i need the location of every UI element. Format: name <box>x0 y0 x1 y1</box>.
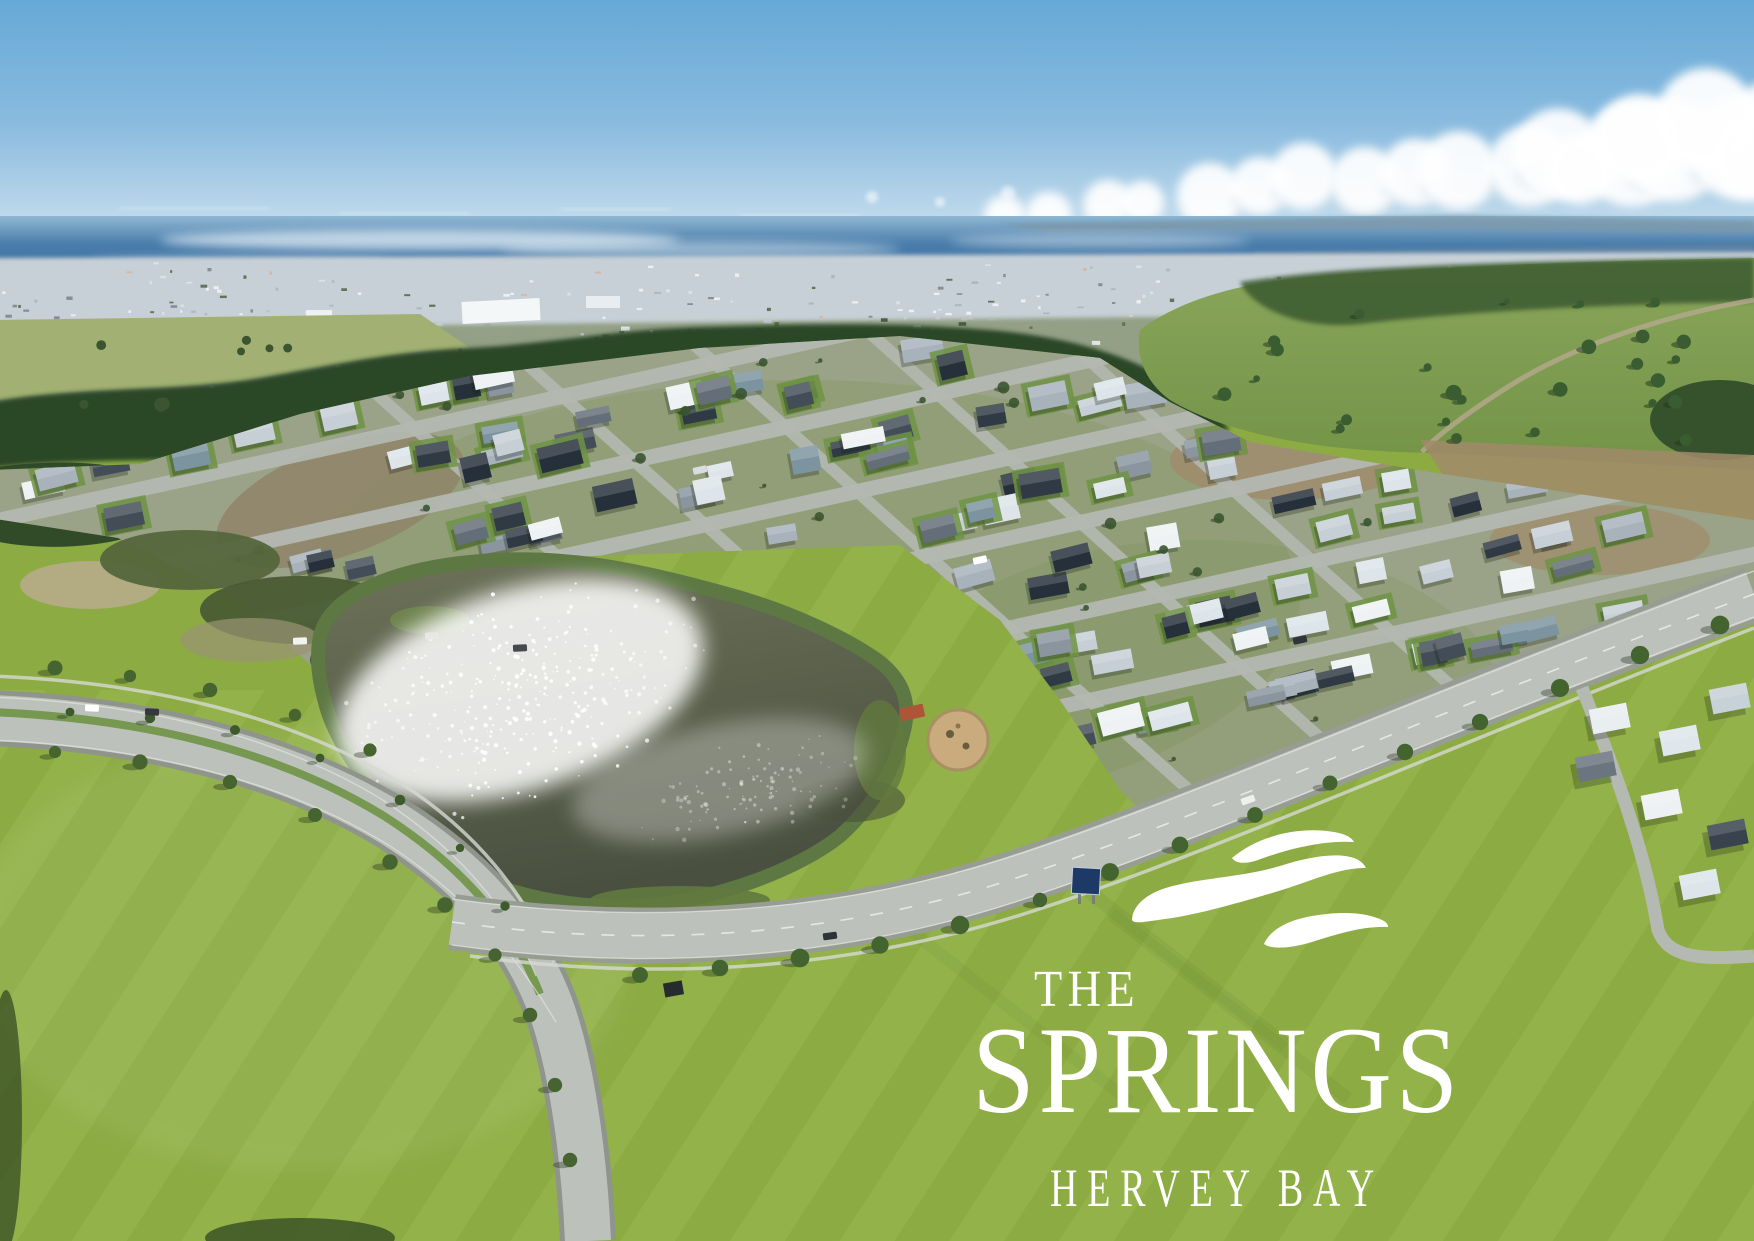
sparkle-dot <box>380 739 383 742</box>
sparkle-dot <box>780 767 784 771</box>
city-fleck <box>897 309 902 311</box>
sparkle-dot <box>757 743 761 747</box>
city-fleck <box>933 311 936 314</box>
estate-tree <box>1214 513 1224 523</box>
sparkle-dot <box>531 639 535 643</box>
city-fleck <box>160 276 166 278</box>
sparkle-dot <box>478 680 482 684</box>
cloud-puff <box>1270 143 1337 210</box>
sparkle-dot <box>688 828 691 831</box>
sparkle-dot <box>555 665 558 668</box>
sparkle-dot <box>553 739 557 743</box>
sparkle-dot <box>426 759 428 761</box>
city-fleck <box>985 264 991 266</box>
sparkle-dot <box>514 684 517 687</box>
sparkle-dot <box>496 704 498 706</box>
sparkle-dot <box>447 645 451 649</box>
sparkle-dot <box>554 718 556 720</box>
sparkle-dot <box>679 798 683 802</box>
sparkle-dot <box>472 634 474 636</box>
city-fleck <box>341 288 347 291</box>
sparkle-dot <box>477 615 479 617</box>
city-fleck <box>1129 315 1133 317</box>
sparkle-dot <box>567 610 571 614</box>
logo-location: HERVEY BAY <box>1050 1158 1384 1218</box>
sparkle-dot <box>768 762 771 765</box>
sparkle-dot <box>492 648 496 652</box>
estate-tree <box>635 453 646 464</box>
sparkle-dot <box>642 686 646 690</box>
field-tree <box>242 336 251 345</box>
street-tree <box>132 754 147 769</box>
sparkle-dot <box>550 679 554 683</box>
city-fleck <box>909 310 914 313</box>
sparkle-dot <box>475 683 477 685</box>
sparkle-dot <box>473 645 475 647</box>
sparkle-dot <box>693 644 697 648</box>
paddock-tree <box>1636 330 1650 344</box>
city-fleck <box>162 312 164 315</box>
sparkle-dot <box>665 630 669 634</box>
sparkle-dot <box>571 720 575 724</box>
city-fleck <box>180 305 183 307</box>
street-tree <box>1711 616 1730 635</box>
sparkle-dot <box>590 668 593 671</box>
sparkle-dot <box>394 699 398 703</box>
city-fleck <box>220 296 227 298</box>
sparkle-dot <box>468 783 472 787</box>
city-fleck <box>200 285 207 288</box>
city-fleck <box>666 289 670 292</box>
sparkle-dot <box>792 781 794 783</box>
paddock-tree <box>1631 358 1643 370</box>
field-tree <box>79 400 88 409</box>
city-fleck <box>251 309 253 312</box>
city-fleck <box>276 288 279 291</box>
city-fleck <box>1098 283 1102 286</box>
city-fleck <box>946 279 952 281</box>
aerial-photo-springs-hervey-bay: THE SPRINGS HERVEY BAY <box>0 0 1754 1241</box>
sparkle-dot <box>555 747 557 749</box>
city-fleck <box>358 292 362 295</box>
sparkle-dot <box>532 733 534 735</box>
car <box>293 637 307 644</box>
sparkle-dot <box>374 721 377 724</box>
city-fleck <box>71 314 76 316</box>
sparkle-dot <box>521 668 525 672</box>
sparkle-dot <box>473 750 475 752</box>
city-fleck <box>319 280 325 282</box>
sparkle-dot <box>526 712 530 716</box>
field-tree <box>237 347 245 355</box>
city-fleck <box>150 281 152 284</box>
sparkle-dot <box>593 744 597 748</box>
sparkle-dot <box>655 599 659 603</box>
street-tree <box>66 708 75 717</box>
sparkle-dot <box>529 795 531 797</box>
city-fleck <box>1090 267 1092 269</box>
street-tree <box>437 897 453 913</box>
city-fleck <box>13 305 17 308</box>
sparkle-dot <box>566 670 570 674</box>
sparkle-dot <box>610 630 613 633</box>
cloud-puff <box>1546 136 1614 204</box>
sparkle-dot <box>569 605 573 609</box>
sparkle-dot <box>521 659 523 661</box>
sparkle-dot <box>618 680 619 681</box>
city-fleck <box>128 310 130 313</box>
sparkle-dot <box>792 787 796 791</box>
sparkle-dot <box>463 739 466 742</box>
sparkle-dot <box>525 733 527 735</box>
sparkle-dot <box>746 808 748 810</box>
sparkle-dot <box>414 770 416 772</box>
sparkle-dot <box>742 796 743 797</box>
sparkle-dot <box>579 657 581 659</box>
sparkle-dot <box>509 625 512 628</box>
suburb-fleck <box>1122 322 1125 326</box>
city-fleck <box>809 302 814 304</box>
suburb-fleck <box>1029 326 1032 328</box>
paddock-tree <box>1341 414 1352 425</box>
sparkle-dot <box>634 661 635 662</box>
city-fleck <box>2 291 5 294</box>
sparkle-dot <box>790 811 794 815</box>
sparkle-dot <box>575 582 577 584</box>
sparkle-dot <box>584 691 588 695</box>
estate-tree <box>762 484 766 488</box>
sparkle-dot <box>710 767 713 770</box>
sparkle-dot <box>406 701 409 704</box>
sparkle-dot <box>668 621 672 625</box>
sparkle-dot <box>509 699 511 701</box>
sparkle-dot <box>540 596 542 598</box>
sparkle-dot <box>537 704 540 707</box>
car <box>425 632 439 639</box>
city-fleck <box>34 300 37 303</box>
sparkle-dot <box>527 762 531 766</box>
sparkle-dot <box>652 838 654 840</box>
sparkle-dot <box>506 707 508 709</box>
street-tree <box>363 743 376 756</box>
street-tree <box>1631 646 1649 664</box>
sparkle-dot <box>728 760 731 763</box>
street-tree <box>1322 775 1337 790</box>
city-fleck <box>1003 274 1005 277</box>
estate-tree <box>1009 398 1019 408</box>
sparkle-dot <box>491 592 495 596</box>
suburb-fleck <box>881 318 888 322</box>
street-tree <box>712 960 729 977</box>
sparkle-dot <box>441 684 445 688</box>
sparkle-dot <box>489 662 491 664</box>
sparkle-dot <box>603 700 607 704</box>
city-fleck <box>66 297 72 300</box>
sparkle-dot <box>813 795 816 798</box>
sparkle-dot <box>609 683 610 684</box>
sparkle-dot <box>789 768 792 771</box>
sparkle-dot <box>729 788 730 789</box>
sparkle-dot <box>801 746 804 749</box>
city-fleck <box>5 315 11 318</box>
city-fleck <box>332 280 334 283</box>
sparkle-dot <box>367 723 371 727</box>
sparkle-dot <box>522 709 525 712</box>
sparkle-dot <box>396 719 400 723</box>
sparkle-dot <box>483 751 488 756</box>
sparkle-dot <box>514 717 518 721</box>
sparkle-dot <box>507 688 509 690</box>
sparkle-dot <box>482 743 484 745</box>
sparkle-dot <box>699 820 700 821</box>
sparkle-dot <box>660 697 662 699</box>
field-tree <box>266 344 274 352</box>
sparkle-dot <box>361 742 364 745</box>
street-tree <box>382 854 397 869</box>
sparkle-dot <box>535 653 538 656</box>
sparkle-dot <box>703 802 707 806</box>
sparkle-dot <box>493 625 497 629</box>
sparkle-dot <box>528 634 531 637</box>
sparkle-dot <box>722 782 726 786</box>
city-fleck <box>687 303 693 305</box>
sparkle-dot <box>565 641 567 643</box>
sparkle-dot <box>497 647 500 650</box>
sparkle-dot <box>448 737 452 741</box>
street-tree <box>1033 893 1047 907</box>
city-fleck <box>150 311 154 313</box>
sparkle-dot <box>482 632 484 634</box>
estate-tree <box>1159 545 1168 554</box>
sparkle-dot <box>544 676 548 680</box>
sparkle-dot <box>568 751 570 753</box>
sparkle-dot <box>534 747 537 750</box>
sparkle-dot <box>606 703 608 705</box>
sparkle-dot <box>546 695 547 696</box>
cloud-streak <box>120 207 270 210</box>
sparkle-dot <box>791 820 795 824</box>
sparkle-dot <box>616 734 620 738</box>
sparkle-dot <box>552 671 553 672</box>
house <box>786 445 822 479</box>
sparkle-dot <box>554 767 558 771</box>
tree-shadow <box>56 715 67 719</box>
estate-tree <box>735 388 747 400</box>
sparkle-dot <box>752 776 754 778</box>
city-fleck <box>992 304 998 307</box>
sparkle-dot <box>429 723 430 724</box>
city-fleck <box>206 288 209 291</box>
sparkle-dot <box>515 674 520 679</box>
sparkle-dot <box>556 636 558 638</box>
sparkle-dot <box>809 756 812 759</box>
sparkle-dot <box>614 688 616 690</box>
sparkle-dot <box>378 687 380 689</box>
sparkle-dot <box>543 663 545 665</box>
city-fleck <box>269 271 272 274</box>
estate-tree <box>997 382 1009 394</box>
estate-tree <box>919 397 925 403</box>
sparkle-dot <box>344 701 348 705</box>
sparkle-dot <box>429 667 431 669</box>
suburb-fleck <box>621 327 630 331</box>
sparkle-dot <box>433 689 435 691</box>
sparkle-dot <box>628 711 631 714</box>
city-fleck <box>966 312 971 315</box>
sparkle-dot <box>565 683 569 687</box>
sparkle-dot <box>629 658 632 661</box>
paddock-tree <box>1677 335 1691 349</box>
sparkle-dot <box>437 727 440 730</box>
sparkle-dot <box>480 613 483 616</box>
sparkle-dot <box>505 641 508 644</box>
sparkle-dot <box>637 692 641 696</box>
sparkle-dot <box>413 691 415 693</box>
estate-tree <box>1083 605 1089 611</box>
city-fleck <box>1077 306 1084 308</box>
sparkle-dot <box>530 716 532 718</box>
street-tree <box>1172 837 1189 854</box>
estate-tree <box>1313 716 1318 721</box>
city-fleck <box>730 301 732 303</box>
sparkle-dot <box>488 637 492 641</box>
sparkle-dot <box>484 781 488 785</box>
sparkle-dot <box>355 750 357 752</box>
sparkle-dot <box>849 764 852 767</box>
sparkle-dot <box>409 713 413 717</box>
city-fleck <box>767 308 771 311</box>
estate-tree <box>1363 518 1371 526</box>
cloud-wisp <box>935 197 945 207</box>
sparkle-dot <box>508 721 512 725</box>
sparkle-dot <box>633 604 638 609</box>
city-fleck <box>735 273 739 276</box>
city-fleck <box>23 310 29 312</box>
sparkle-dot <box>758 759 760 761</box>
sparkle-dot <box>595 654 598 657</box>
sparkle-dot <box>470 695 474 699</box>
sparkle-dot <box>476 786 480 790</box>
sparkle-dot <box>593 697 597 701</box>
paddock-tree <box>1668 395 1682 409</box>
sparkle-dot <box>408 651 411 654</box>
city-fleck <box>595 272 601 274</box>
sparkle-dot <box>679 806 682 809</box>
estate-tree <box>423 505 430 512</box>
sparkle-dot <box>679 782 682 785</box>
sparkle-dot <box>532 649 535 652</box>
sparkle-dot <box>541 666 546 671</box>
paddock-tree <box>1253 375 1260 382</box>
sparkle-dot <box>691 597 696 602</box>
sparkle-dot <box>489 735 492 738</box>
sparkle-dot <box>744 821 746 823</box>
sparkle-dot <box>594 644 599 649</box>
suburb-fleck <box>959 322 967 326</box>
sparkle-dot <box>697 790 700 793</box>
street-tree <box>124 670 136 682</box>
city-fleck <box>1136 265 1141 267</box>
sparkle-dot <box>749 798 752 801</box>
sparkle-dot <box>808 738 809 739</box>
street-tree <box>632 967 648 983</box>
sparkle-dot <box>545 779 548 782</box>
sparkle-dot <box>683 624 685 626</box>
city-fleck <box>205 313 207 315</box>
sparkle-dot <box>733 808 735 810</box>
sparkle-dot <box>468 738 471 741</box>
sparkle-dot <box>525 717 529 721</box>
sparkle-dot <box>498 644 501 647</box>
sparkle-dot <box>600 722 603 725</box>
sparkle-dot <box>820 762 822 764</box>
city-fleck <box>695 274 699 276</box>
sparkle-dot <box>774 807 777 810</box>
sparkle-dot <box>569 589 571 591</box>
cloud-streak <box>560 208 670 211</box>
sparkle-dot <box>644 650 646 652</box>
sparkle-dot <box>504 747 506 749</box>
sparkle-dot <box>623 650 626 653</box>
sparkle-dot <box>591 716 593 718</box>
city-fleck <box>957 293 962 295</box>
sparkle-dot <box>471 794 473 796</box>
street-tree <box>791 949 810 968</box>
street-tree <box>308 808 322 822</box>
cloud-wisp <box>866 191 878 203</box>
sparkle-dot <box>426 693 429 696</box>
paddock-tree <box>1648 399 1656 407</box>
city-fleck <box>404 294 410 296</box>
sparkle-dot <box>534 675 538 679</box>
sparkle-dot <box>506 752 509 755</box>
sparkle-dot <box>570 681 571 682</box>
paddock-tree <box>1336 424 1345 433</box>
city-fleck <box>1150 291 1153 294</box>
sparkle-dot <box>742 798 745 801</box>
sparkle-dot <box>529 718 532 721</box>
sparkle-dot <box>543 626 545 628</box>
sparkle-dot <box>703 650 705 652</box>
street-tree <box>500 901 509 910</box>
sparkle-dot <box>798 754 800 756</box>
sparkle-dot <box>752 778 755 781</box>
sun-glint-on-sea <box>500 241 900 257</box>
street-tree <box>1247 807 1263 823</box>
city-fleck <box>503 294 509 297</box>
sparkle-dot <box>800 790 802 792</box>
cloud-puff <box>1420 131 1498 209</box>
sparkle-dot <box>615 676 618 679</box>
sparkle-dot <box>464 721 466 723</box>
paddock-tree <box>1218 387 1232 401</box>
estate-tree <box>1172 757 1176 761</box>
tree-shadow <box>307 761 318 765</box>
tree-shadow <box>447 851 457 855</box>
sparkle-dot <box>474 772 476 774</box>
sparkle-dot <box>616 764 620 768</box>
suburb-fleck <box>1092 341 1100 345</box>
sparkle-dot <box>461 816 464 819</box>
city-fleck <box>637 308 643 310</box>
sparkle-dot <box>675 827 679 831</box>
sparkle-dot <box>489 717 493 721</box>
sparkle-dot <box>500 729 502 731</box>
sparkle-dot <box>450 691 451 692</box>
sparkle-dot <box>716 826 719 829</box>
sparkle-dot <box>808 805 812 809</box>
estate-tree <box>1105 518 1117 530</box>
